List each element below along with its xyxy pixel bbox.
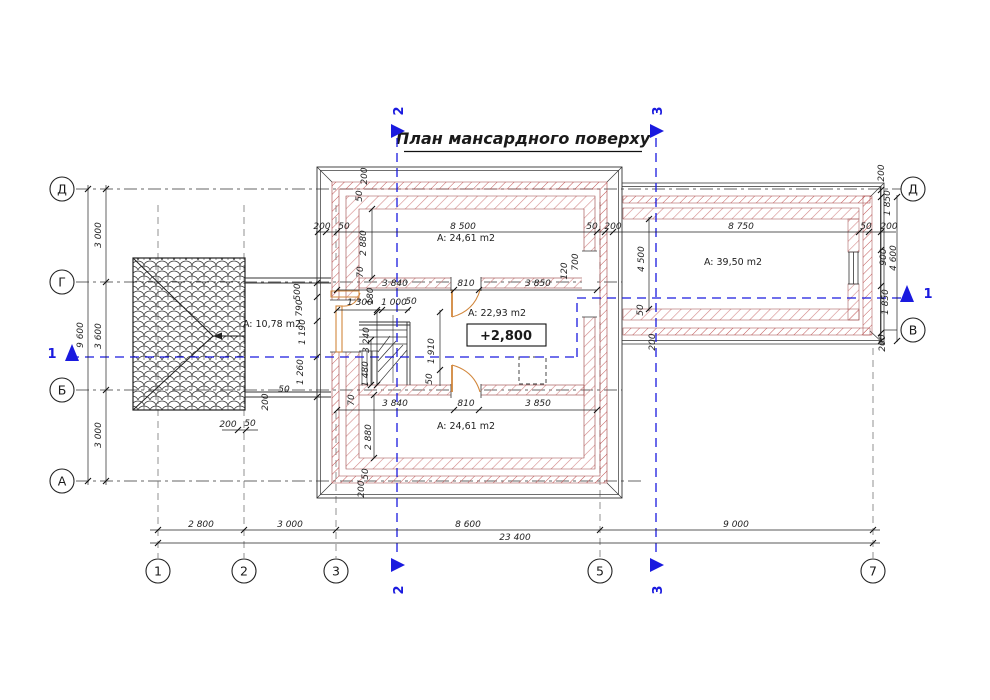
dim-right-4: 1 850 [881,289,891,315]
axis-label-col-1: 1 [154,564,162,579]
dim-balcony-200: 200 [261,393,271,410]
dim-right-1: 200 [877,164,887,181]
dim-topleft-50: 50 [355,190,365,202]
chimney-shaft [519,357,546,384]
dim-top-7: 50 [860,222,872,232]
dim-bottom-3: 8 600 [455,520,481,530]
room-label-balcony: A: 10,78 m2 [243,319,301,330]
section-3-top-arrow-icon [650,124,664,138]
axis-bubble-right-d: Д [901,177,925,201]
axis-label-col-3: 3 [332,564,340,579]
dim-balcony-1260: 1 260 [296,359,306,385]
dim-balcony-790: 790 [295,299,305,316]
dim-stair-70: 70 [347,394,357,406]
floor-plan-canvas: План мансардного поверху A: 10,78 m2 [0,0,990,700]
dim-wing-200: 200 [648,333,658,350]
dim-balcbot-50: 50 [244,419,256,429]
dim-wing-4500: 4 500 [637,246,647,272]
dim-right-5: 200 [878,334,888,351]
dim-wall1-700: 700 [571,253,581,270]
axis-label-left-b: Б [58,383,67,398]
dim-top-1: 200 [313,222,330,232]
door-opening-2 [451,383,481,397]
dim-toproom-70: 70 [356,266,366,278]
dim-wall1-2: 810 [457,279,474,289]
dim-wall1-3: 3 850 [525,279,551,289]
dim-stair-1910: 1 910 [427,338,437,364]
section-2-bottom-label: 2 [392,585,407,594]
axis-bubble-col-7: 7 [861,559,885,583]
dim-bottom-4: 9 000 [723,520,749,530]
axis-label-left-a: А [58,474,67,489]
grid-columns [158,202,873,558]
section-2-bottom-arrow-icon [391,558,405,572]
axis-label-col-2: 2 [240,564,248,579]
dim-toproom-2880: 2 880 [359,230,369,256]
room-label-middle: A: 22,93 m2 [468,308,526,319]
dim-left-3: 3 000 [94,422,104,448]
dim-top-5: 200 [604,222,621,232]
dim-botroom-200: 200 [357,480,367,497]
dim-left-total: 9 600 [76,322,86,348]
dim-bottom-2: 3 000 [277,520,303,530]
dim-right-2: 1 850 [883,190,893,216]
room-label-top: A: 24,61 m2 [437,233,495,244]
dim-right-3: 900 [879,248,889,265]
elevation-mark: +2,800 [480,329,532,344]
wing-window [848,252,859,284]
axis-bubble-left-b: Б [50,378,74,402]
dim-wall2-3: 3 850 [525,399,551,409]
dim-top-6: 8 750 [728,222,754,232]
dim-stair-3240: 3 240 [362,327,372,353]
dim-stair-180: 180 [366,287,376,304]
dim-botroom-2880: 2 880 [364,424,374,450]
dim-balcbot-200: 200 [219,420,236,430]
axis-bubble-col-3: 3 [324,559,348,583]
dim-topleft-200: 200 [360,167,370,184]
dim-right-total: 4 600 [889,245,899,271]
axis-label-left-g: Г [58,275,66,290]
axis-bubble-left-g: Г [50,270,74,294]
axis-label-col-7: 7 [869,564,877,579]
section-2-top-label: 2 [392,106,407,115]
section-1-right-arrow-icon [900,285,914,302]
section-3-bottom-arrow-icon [650,558,664,572]
dim-wall2-2: 810 [457,399,474,409]
dim-top-3: 8 500 [450,222,476,232]
dim-balcony-50: 50 [278,385,290,395]
section-3-bottom-label: 3 [651,585,666,594]
drawing-title: План мансардного поверху [396,129,651,152]
axis-label-left-d: Д [57,182,67,197]
roof-hatch-area [133,258,245,410]
axis-bubble-left-a: А [50,469,74,493]
dim-wing-50: 50 [636,304,646,316]
section-1-left-label: 1 [47,347,56,362]
dim-wall2-1: 3 840 [382,399,408,409]
axis-bubble-right-v: В [901,318,925,342]
dim-wall1-120: 120 [560,262,570,279]
dim-balcony-500: 500 [293,283,303,300]
dim-left-2: 3 600 [94,323,104,349]
floor-plan-page: План мансардного поверху A: 10,78 m2 [0,0,990,700]
dim-balcony-1190: 1 190 [298,319,308,345]
dim-stair-1000: 1 000 [381,298,407,308]
dim-bottom-total: 23 400 [499,533,531,543]
room-label-right: A: 39,50 m2 [704,257,762,268]
room-label-bottom: A: 24,61 m2 [437,421,495,432]
section-3-top-label: 3 [651,106,666,115]
right-wing: A: 39,50 m2 [622,183,884,344]
axis-label-col-5: 5 [596,564,604,579]
dim-bottom-1: 2 800 [188,520,214,530]
dim-top-2: 50 [338,222,350,232]
page-title: План мансардного поверху [396,129,651,148]
axis-label-right-d: Д [908,182,918,197]
axis-bubble-left-d: Д [50,177,74,201]
dim-stair-50r: 50 [425,373,435,385]
wing-passage-opening [582,251,597,317]
dim-stair-50t: 50 [405,297,417,307]
dim-botroom-50: 50 [361,468,371,480]
axis-bubble-col-2: 2 [232,559,256,583]
roof-outline [133,258,245,410]
axis-bubble-col-1: 1 [146,559,170,583]
section-1-right-label: 1 [923,287,932,302]
dim-top-4: 50 [586,222,598,232]
axis-label-right-v: В [909,323,918,338]
axis-bubble-col-5: 5 [588,559,612,583]
dim-top-8: 200 [880,222,897,232]
dim-stair-1480: 1 480 [361,361,371,387]
dim-wall1-1: 3 840 [382,279,408,289]
dim-left-1: 3 000 [94,222,104,248]
